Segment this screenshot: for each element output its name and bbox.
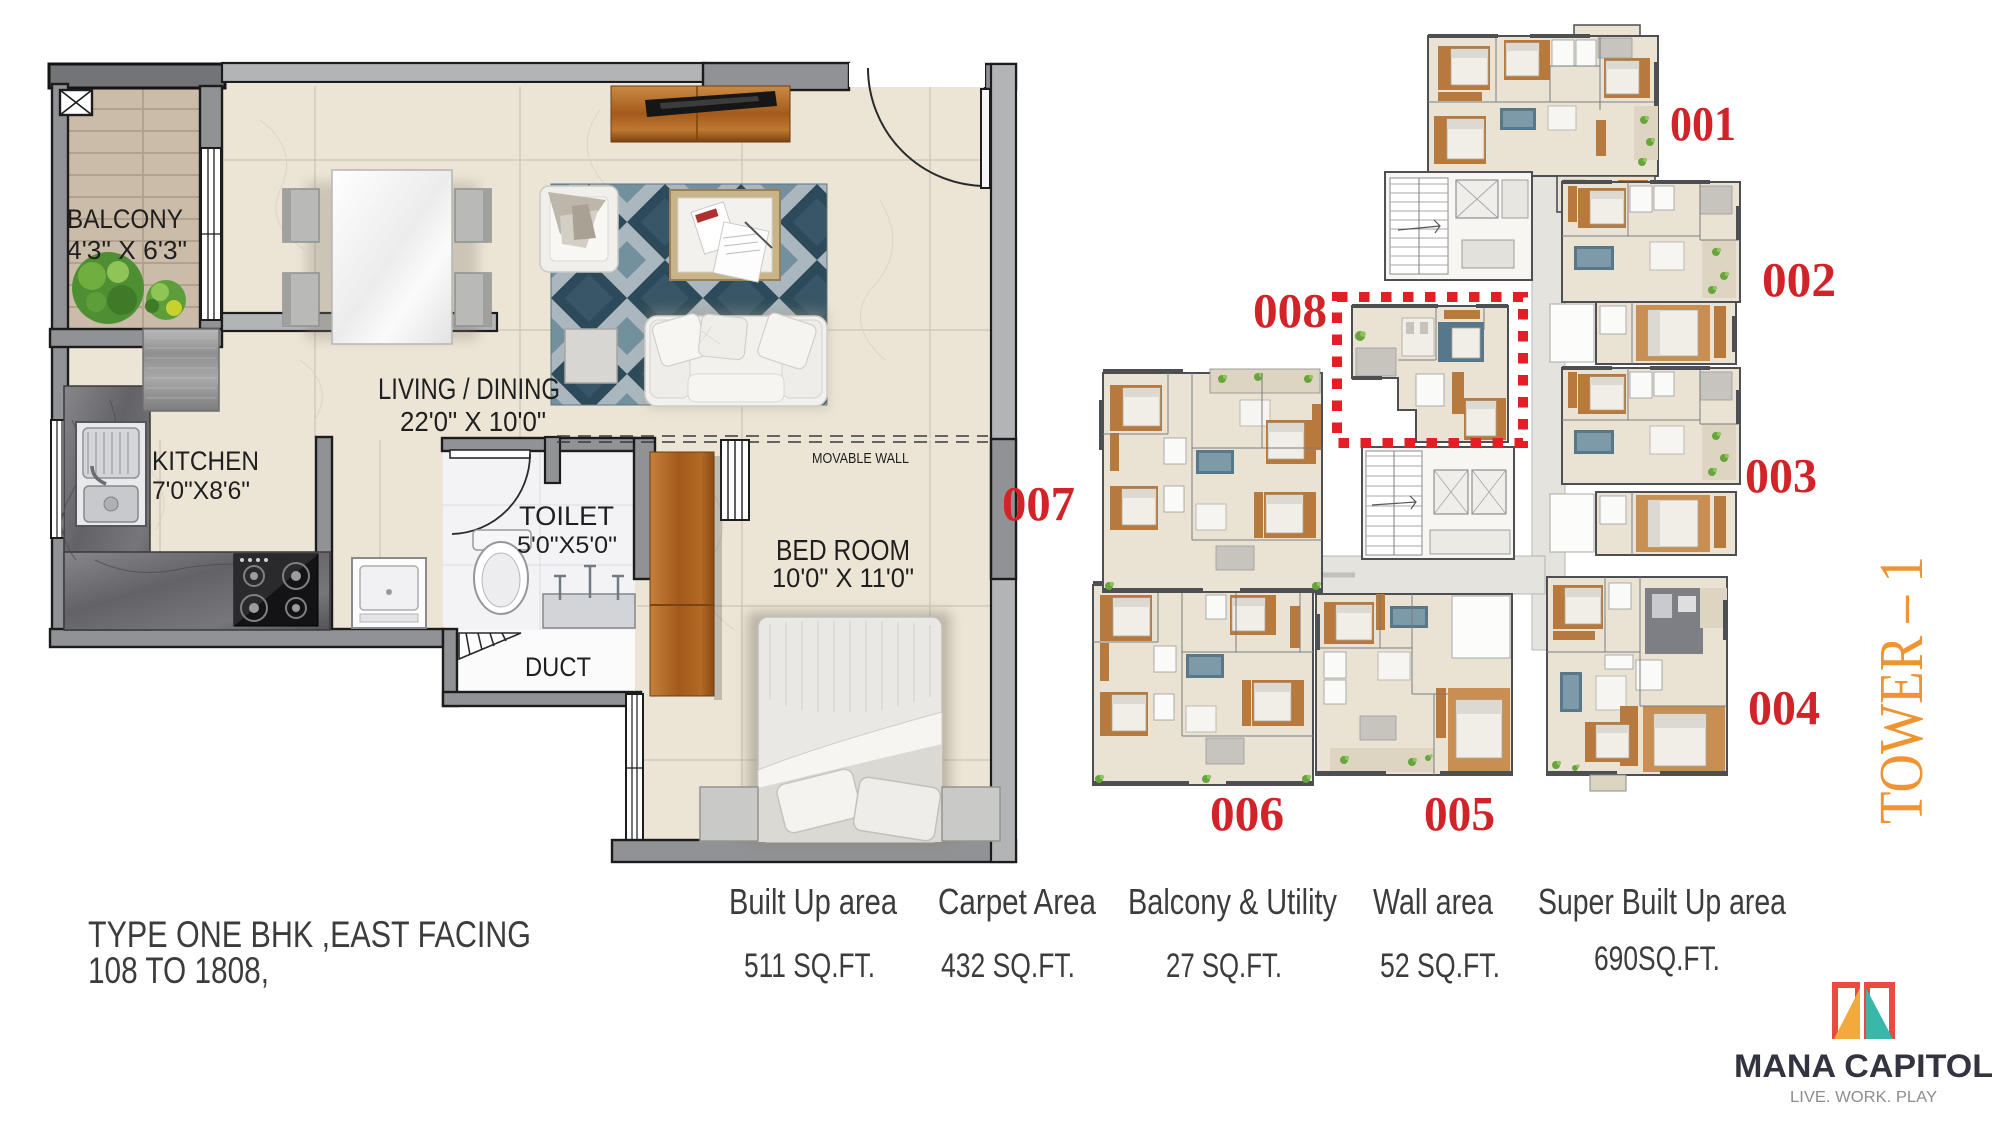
svg-text:Balcony & Utility: Balcony & Utility — [1128, 881, 1337, 922]
svg-text:7'0"X8'6": 7'0"X8'6" — [152, 477, 250, 505]
svg-text:MOVABLE WALL: MOVABLE WALL — [812, 450, 909, 467]
svg-text:432 SQ.FT.: 432 SQ.FT. — [941, 947, 1075, 985]
svg-text:27 SQ.FT.: 27 SQ.FT. — [1166, 947, 1282, 985]
svg-text:52 SQ.FT.: 52 SQ.FT. — [1380, 947, 1500, 985]
svg-text:007: 007 — [1002, 476, 1075, 531]
svg-text:4'3" X 6'3": 4'3" X 6'3" — [67, 235, 187, 265]
svg-text:Built Up area: Built Up area — [729, 881, 898, 922]
svg-text:BALCONY: BALCONY — [67, 204, 183, 234]
svg-text:TYPE ONE BHK ,EAST FACING: TYPE ONE BHK ,EAST FACING — [88, 914, 531, 955]
svg-text:KITCHEN: KITCHEN — [152, 446, 259, 476]
svg-text:Super Built Up area: Super Built Up area — [1538, 881, 1787, 922]
svg-text:10'0" X 11'0": 10'0" X 11'0" — [772, 563, 914, 593]
svg-text:TOWER – 1: TOWER – 1 — [1868, 556, 1936, 824]
svg-text:002: 002 — [1762, 252, 1836, 307]
svg-text:Carpet Area: Carpet Area — [938, 881, 1097, 922]
svg-text:108 TO 1808,: 108 TO 1808, — [88, 950, 269, 991]
svg-text:LIVING / DINING: LIVING / DINING — [378, 373, 560, 406]
svg-text:004: 004 — [1748, 680, 1820, 735]
svg-text:511 SQ.FT.: 511 SQ.FT. — [744, 947, 875, 985]
svg-text:DUCT: DUCT — [525, 652, 591, 682]
svg-text:22'0" X 10'0": 22'0" X 10'0" — [400, 406, 546, 437]
svg-text:MANA CAPITOL: MANA CAPITOL — [1734, 1048, 1993, 1084]
svg-text:LIVE. WORK. PLAY: LIVE. WORK. PLAY — [1790, 1089, 1937, 1106]
svg-text:003: 003 — [1745, 448, 1817, 503]
svg-text:5'0"X5'0": 5'0"X5'0" — [517, 532, 617, 559]
svg-text:005: 005 — [1424, 786, 1495, 841]
svg-text:Wall area: Wall area — [1373, 881, 1494, 922]
svg-text:690SQ.FT.: 690SQ.FT. — [1594, 940, 1720, 978]
svg-text:001: 001 — [1670, 96, 1736, 151]
svg-text:008: 008 — [1253, 283, 1327, 338]
svg-text:006: 006 — [1210, 786, 1284, 841]
svg-text:TOILET: TOILET — [519, 501, 614, 531]
